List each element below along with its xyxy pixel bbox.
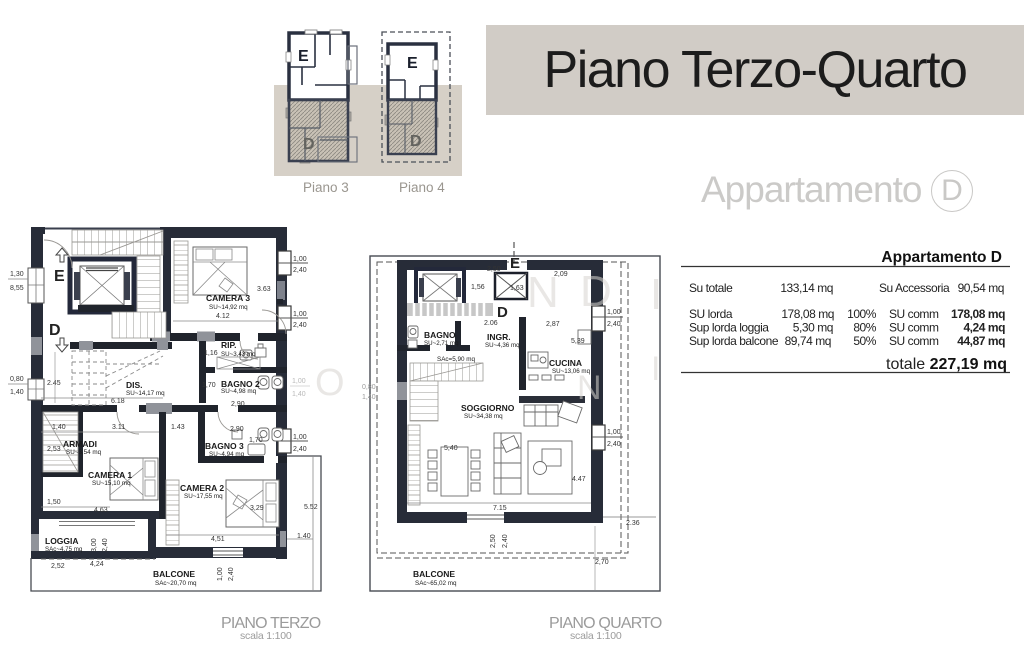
svg-text:1,00: 1,00 [293,311,307,318]
svg-text:90,54 mq: 90,54 mq [958,281,1004,295]
svg-text:1,40: 1,40 [362,394,376,401]
svg-text:CAMERA 3: CAMERA 3 [206,293,250,303]
svg-text:SU~4,98 mq: SU~4,98 mq [221,388,257,395]
svg-text:133,14 mq: 133,14 mq [780,281,833,295]
svg-text:SU~2,71 mq: SU~2,71 mq [424,340,459,347]
svg-text:DIS.: DIS. [126,380,143,390]
svg-text:E: E [510,255,520,272]
svg-text:D: D [303,136,315,153]
svg-text:E: E [298,48,309,65]
svg-text:BALCONE: BALCONE [153,569,195,579]
svg-text:CAMERA 1: CAMERA 1 [88,470,132,480]
svg-text:2,87: 2,87 [546,321,560,328]
svg-text:SAc~65,02 mq: SAc~65,02 mq [415,580,457,587]
svg-text:2,50: 2,50 [490,534,497,548]
svg-text:3.63: 3.63 [257,286,271,293]
svg-text:SU~4,36 mq: SU~4,36 mq [485,342,520,349]
svg-text:2,70: 2,70 [595,559,609,566]
svg-text:0,80: 0,80 [10,376,24,383]
svg-text:I: I [650,270,662,319]
svg-text:O: O [315,362,345,404]
svg-text:LOGGIA: LOGGIA [45,536,79,546]
svg-text:4.47: 4.47 [572,476,586,483]
svg-text:50%: 50% [853,334,876,348]
svg-text:N: N [577,369,602,407]
svg-text:D: D [580,267,612,316]
svg-text:E: E [407,55,418,72]
svg-text:5.52: 5.52 [304,504,318,511]
svg-text:D: D [497,304,508,321]
svg-text:2,53: 2,53 [47,446,61,453]
svg-text:0,80: 0,80 [362,384,376,391]
svg-text:2,40: 2,40 [502,534,509,548]
svg-text:I: I [651,350,660,388]
svg-text:1,50: 1,50 [47,499,61,506]
svg-text:scala 1:100: scala 1:100 [240,630,292,642]
svg-text:4,24: 4,24 [90,561,104,568]
svg-text:100%: 100% [847,307,877,321]
svg-text:1,00: 1,00 [293,256,307,263]
svg-text:Su Accessoria: Su Accessoria [879,281,950,295]
svg-text:5,40: 5,40 [444,445,458,452]
svg-text:3,00: 3,00 [91,538,98,552]
svg-text:1,63: 1,63 [510,285,524,292]
svg-text:SU comm: SU comm [889,307,939,321]
svg-text:2.36: 2.36 [626,520,640,527]
svg-text:2.45: 2.45 [47,380,61,387]
svg-text:1,70: 1,70 [249,437,263,444]
svg-text:BAGNO: BAGNO [424,330,456,340]
svg-text:SU~4,94 mq: SU~4,94 mq [209,451,245,458]
svg-text:ARMADI: ARMADI [63,439,97,449]
svg-text:7.15: 7.15 [493,505,507,512]
svg-text:3,29: 3,29 [250,505,264,512]
svg-text:3.11: 3.11 [112,424,125,431]
svg-text:1,00: 1,00 [217,567,224,581]
svg-text:2,90: 2,90 [231,401,245,408]
svg-text:SU~14,92 mq: SU~14,92 mq [209,304,248,311]
svg-text:8,55: 8,55 [10,285,24,292]
svg-text:Su totale: Su totale [689,281,733,295]
svg-text:2,50: 2,50 [487,266,501,273]
svg-text:4,24 mq: 4,24 mq [963,321,1005,335]
svg-text:1,70: 1,70 [202,382,216,389]
svg-text:D: D [49,322,61,339]
svg-text:SU~17,55 mq: SU~17,55 mq [184,493,223,500]
svg-text:RIP.: RIP. [221,340,236,350]
svg-text:SU comm: SU comm [889,321,939,335]
svg-text:2,90: 2,90 [230,426,244,433]
svg-text:2,40: 2,40 [293,267,307,274]
svg-text:80%: 80% [853,321,876,335]
svg-text:totale 227,19 mq: totale 227,19 mq [886,356,1007,373]
svg-text:1.40: 1.40 [297,533,311,540]
svg-text:1,16: 1,16 [204,350,218,357]
svg-text:1.43: 1.43 [171,424,185,431]
svg-text:2,52: 2,52 [51,563,65,570]
svg-text:1,40: 1,40 [10,389,24,396]
svg-text:BALCONE: BALCONE [413,569,455,579]
svg-text:N: N [527,268,559,317]
svg-text:BAGNO 3: BAGNO 3 [205,441,244,451]
svg-text:2,40: 2,40 [228,567,235,581]
svg-text:5,39: 5,39 [571,338,585,345]
svg-text:scala 1:100: scala 1:100 [570,630,622,642]
svg-text:5,30 mq: 5,30 mq [793,321,833,335]
svg-text:178,08 mq: 178,08 mq [781,307,834,321]
svg-text:SU~14,17 mq: SU~14,17 mq [126,390,165,397]
svg-text:1,40: 1,40 [292,391,306,398]
svg-text:2,40: 2,40 [102,538,109,552]
svg-text:4,51: 4,51 [211,536,225,543]
svg-text:SU~34,38 mq: SU~34,38 mq [464,413,503,420]
svg-text:178,08 mq: 178,08 mq [951,307,1005,321]
svg-text:1,00: 1,00 [607,429,621,436]
svg-text:1,00: 1,00 [293,434,307,441]
svg-text:Piano 4: Piano 4 [399,180,445,195]
svg-text:Sup lorda loggia: Sup lorda loggia [689,321,769,335]
svg-text:1,56: 1,56 [471,284,485,291]
svg-text:SAc~4,75 mq: SAc~4,75 mq [45,546,83,553]
svg-text:SU~3,54 mq: SU~3,54 mq [66,449,102,456]
svg-text:D: D [410,133,422,150]
svg-text:SU lorda: SU lorda [689,307,733,321]
svg-text:SAc~20,70 mq: SAc~20,70 mq [155,580,197,587]
svg-text:4.12: 4.12 [216,313,230,320]
svg-text:1,00: 1,00 [292,378,306,385]
svg-text:89,74 mq: 89,74 mq [785,334,831,348]
svg-text:2.06: 2.06 [484,320,498,327]
svg-text:Sup lorda balcone: Sup lorda balcone [689,334,779,348]
svg-text:4.63: 4.63 [94,507,108,514]
svg-text:2,40: 2,40 [293,322,307,329]
svg-text:CUCINA: CUCINA [549,358,582,368]
svg-text:CAMERA 2: CAMERA 2 [180,483,224,493]
svg-text:44,87 mq: 44,87 mq [957,334,1005,348]
svg-text:2,40: 2,40 [607,441,621,448]
svg-text:Piano 3: Piano 3 [303,180,349,195]
svg-text:INGR.: INGR. [487,332,511,342]
svg-text:2,40: 2,40 [607,321,621,328]
svg-text:SU~15,10 mq: SU~15,10 mq [92,480,131,487]
svg-text:SU comm: SU comm [889,334,939,348]
svg-text:1,40: 1,40 [52,424,66,431]
svg-text:6.18: 6.18 [111,398,125,405]
svg-text:SOGGIORNO: SOGGIORNO [461,403,515,413]
svg-text:SAc=5,90 mq: SAc=5,90 mq [437,356,475,363]
svg-text:1,30: 1,30 [10,271,24,278]
svg-text:2,40: 2,40 [293,446,307,453]
svg-text:Appartamento D: Appartamento D [881,249,1002,266]
svg-text:E: E [54,268,65,285]
